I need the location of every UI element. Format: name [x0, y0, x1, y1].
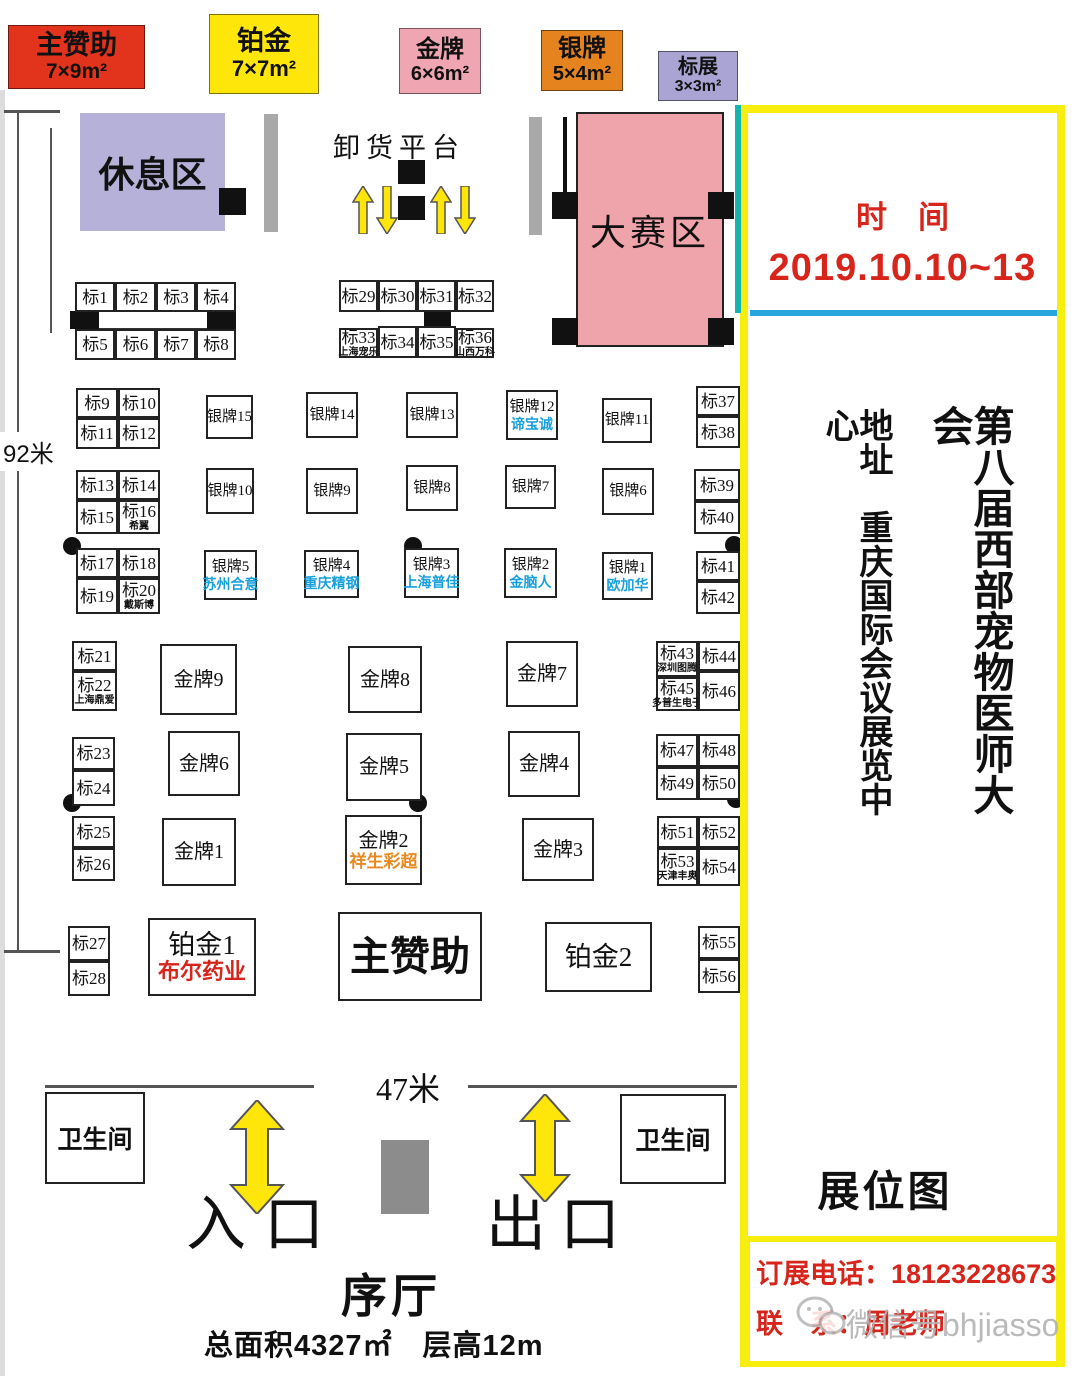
booth-label: 金牌1	[174, 842, 224, 862]
legend-label: 铂金	[237, 27, 291, 57]
booth-标25: 标25	[72, 816, 115, 848]
booth-company: 苏州合意	[203, 577, 259, 591]
booth-标19: 标19	[76, 578, 118, 614]
legend-label: 银牌	[558, 36, 606, 62]
booth-标48: 标48	[698, 734, 740, 767]
booth-标24: 标24	[72, 770, 115, 806]
booth-标30: 标30	[378, 280, 417, 312]
booth-金牌2: 金牌2祥生彩超	[345, 815, 422, 885]
booth-银牌14: 银牌14	[306, 392, 358, 438]
booth-标50: 标50	[698, 767, 740, 800]
booth-标26: 标26	[72, 848, 115, 881]
booth-标14: 标14	[118, 470, 160, 500]
booth-标3: 标3	[156, 282, 196, 312]
event-title: 第八届西部宠物医师大会	[928, 405, 1010, 835]
booth-标1: 标1	[75, 282, 115, 312]
booth-label: 标8	[203, 336, 229, 353]
booth-label: 标52	[702, 824, 736, 841]
legend-size: 7×7m²	[232, 57, 296, 81]
booth-company: 祥生彩超	[350, 853, 418, 870]
booth-label: 标56	[702, 968, 736, 985]
booth-标35: 标35	[417, 326, 456, 358]
booth-label: 标42	[701, 589, 735, 606]
booth-标7: 标7	[156, 329, 196, 360]
booth-company: 金脑人	[510, 575, 552, 589]
booth-标45: 标45多普生电子	[656, 677, 698, 711]
booth-标42: 标42	[696, 581, 740, 614]
booth-银牌8: 银牌8	[406, 465, 458, 511]
booth-标5: 标5	[75, 329, 115, 360]
venue-address: 地址 重庆国际会议展览中心	[822, 408, 890, 838]
booth-label: 主赞助	[350, 937, 470, 977]
phone-line: 订展电话：18123228673	[756, 1252, 1056, 1291]
booth-标41: 标41	[696, 551, 740, 581]
booth-label: 标49	[660, 775, 694, 792]
booth-标21: 标21	[72, 641, 117, 671]
column-marker	[398, 160, 425, 184]
booth-company: 山西万科	[455, 348, 495, 358]
column-marker	[207, 311, 236, 329]
booth-金牌8: 金牌8	[348, 646, 422, 713]
arrow-up-icon	[430, 186, 452, 239]
booth-label: 标26	[77, 856, 111, 873]
column-marker	[552, 318, 578, 345]
booth-label: 标27	[72, 935, 106, 952]
booth-标18: 标18	[118, 548, 160, 578]
booth-标52: 标52	[698, 816, 740, 848]
booth-标36: 标36山西万科	[456, 328, 494, 358]
booth-label: 标32	[458, 288, 492, 305]
rest-area-label: 休息区	[98, 146, 206, 198]
booth-标49: 标49	[656, 767, 698, 800]
page-edge-left	[0, 90, 5, 1376]
column-marker	[708, 192, 734, 219]
dates: 2019.10.10~13	[740, 247, 1065, 290]
booth-company: 上海鼎爱	[75, 696, 115, 706]
booth-标12: 标12	[118, 418, 160, 449]
booth-主赞助: 主赞助	[338, 912, 482, 1001]
booth-标20: 标20戴斯博	[118, 578, 160, 614]
booth-银牌3: 银牌3上海普佳	[404, 548, 459, 598]
booth-label: 标18	[122, 555, 156, 572]
legend-size: 6×6m²	[411, 63, 469, 85]
booth-label: 标20	[122, 582, 156, 599]
blue-divider	[750, 310, 1057, 316]
booth-label: 标10	[122, 395, 156, 412]
wall-segment	[563, 117, 567, 203]
booth-label: 标46	[702, 683, 736, 700]
booth-银牌15: 银牌15	[206, 395, 253, 439]
legend-platinum: 铂金 7×7m²	[209, 14, 319, 94]
booth-company: 重庆精钢	[304, 576, 360, 590]
wechat-icon	[795, 1294, 847, 1345]
booth-label: 标29	[342, 288, 376, 305]
booth-标31: 标31	[417, 280, 456, 312]
booth-label: 标24	[77, 780, 111, 797]
booth-银牌1: 银牌1欧加华	[602, 552, 653, 600]
legend-label: 标展	[678, 56, 718, 78]
booth-label: 标35	[420, 334, 454, 351]
booth-label: 银牌1	[609, 561, 647, 576]
booth-金牌5: 金牌5	[346, 733, 422, 801]
booth-金牌9: 金牌9	[160, 644, 237, 715]
booth-label: 标12	[122, 425, 156, 442]
booth-铂金2: 铂金2	[545, 922, 652, 992]
booth-label: 标13	[80, 477, 114, 494]
booth-label: 银牌5	[212, 560, 250, 575]
booth-金牌4: 金牌4	[508, 731, 580, 797]
booth-company: 布尔药业	[158, 961, 246, 983]
booth-company: 谛宝诚	[511, 417, 553, 431]
rest-area: 休息区	[80, 113, 225, 231]
booth-label: 金牌3	[533, 840, 583, 860]
booth-company: 希翼	[129, 522, 149, 532]
booth-label: 银牌11	[605, 413, 649, 428]
booth-label: 标30	[381, 288, 415, 305]
booth-label: 标53	[661, 853, 695, 870]
booth-company: 戴斯博	[124, 601, 154, 611]
booth-铂金1: 铂金1布尔药业	[148, 918, 256, 996]
booth-标32: 标32	[456, 280, 494, 312]
lobby-label: 序厅	[341, 1260, 441, 1326]
dimension-tick-bottom	[4, 950, 60, 953]
booth-银牌11: 银牌11	[602, 398, 652, 443]
legend-gold: 金牌 6×6m²	[399, 28, 481, 94]
booth-标17: 标17	[76, 548, 118, 578]
booth-label: 银牌13	[409, 408, 454, 423]
booth-label: 标41	[701, 558, 735, 575]
stage-block	[381, 1140, 429, 1214]
booth-银牌4: 银牌4重庆精钢	[304, 550, 359, 598]
booth-label: 银牌7	[512, 480, 550, 495]
booth-label: 标14	[122, 477, 156, 494]
legend-size: 7×9m²	[46, 60, 107, 83]
dimension-tick-top	[4, 110, 60, 113]
pillar	[264, 114, 278, 232]
booth-label: 标38	[701, 424, 735, 441]
competition-area-label: 大赛区	[590, 204, 710, 256]
booth-label: 标15	[80, 509, 114, 526]
booth-标2: 标2	[115, 282, 156, 312]
booth-company: 天津丰奥	[658, 872, 698, 882]
booth-label: 标19	[80, 588, 114, 605]
booth-标40: 标40	[694, 501, 740, 534]
column-marker	[708, 318, 734, 345]
booth-银牌5: 银牌5苏州合意	[204, 550, 257, 600]
booth-银牌6: 银牌6	[602, 468, 654, 515]
arrow-down-icon	[376, 186, 398, 239]
booth-label: 标25	[77, 824, 111, 841]
booth-label: 标47	[660, 742, 694, 759]
column-marker	[219, 188, 246, 215]
booth-label: 标21	[78, 648, 112, 665]
legend-standard: 标展 3×3m²	[658, 51, 738, 101]
column-marker	[398, 196, 425, 220]
booth-label: 铂金2	[565, 944, 633, 971]
booth-label: 标28	[72, 970, 106, 987]
booth-label: 银牌14	[309, 408, 354, 423]
booth-标10: 标10	[118, 388, 160, 418]
booth-company: 上海宠乐	[339, 348, 379, 358]
dimension-line-inner	[50, 128, 52, 333]
toilet-label: 卫生间	[635, 1121, 710, 1157]
competition-area: 大赛区	[576, 112, 724, 347]
booth-label: 标3	[163, 289, 189, 306]
booth-label: 标33	[342, 329, 376, 346]
booth-label: 银牌4	[313, 559, 351, 574]
map-title: 展位图	[770, 1158, 1000, 1219]
booth-label: 标16	[122, 503, 156, 520]
booth-label: 标37	[701, 393, 735, 410]
booth-label: 标39	[700, 477, 734, 494]
booth-标6: 标6	[115, 329, 156, 360]
booth-label: 铂金1	[168, 932, 236, 959]
column-marker	[70, 311, 99, 329]
toilet-left: 卫生间	[45, 1092, 145, 1184]
booth-label: 银牌15	[207, 410, 252, 425]
booth-金牌3: 金牌3	[522, 818, 594, 881]
booth-标44: 标44	[698, 641, 740, 671]
booth-label: 标1	[82, 289, 108, 306]
arrow-up-icon	[352, 186, 374, 239]
booth-标13: 标13	[76, 470, 118, 500]
booth-标29: 标29	[339, 280, 378, 312]
booth-label: 标31	[420, 288, 454, 305]
watermark: 微信号bhjiasso	[846, 1300, 1059, 1346]
booth-标33: 标33上海宠乐	[339, 328, 378, 358]
booth-label: 标22	[78, 677, 112, 694]
booth-label: 标2	[123, 289, 149, 306]
booth-label: 银牌6	[609, 484, 647, 499]
booth-label: 金牌5	[359, 757, 409, 777]
booth-label: 标36	[458, 329, 492, 346]
booth-label: 金牌7	[517, 664, 567, 684]
booth-标16: 标16希翼	[118, 500, 160, 534]
wall-segment	[468, 1085, 737, 1088]
booth-label: 标34	[381, 334, 415, 351]
wall-segment	[45, 1085, 314, 1088]
exit-label: 出口	[486, 1176, 634, 1263]
arrow-down-icon	[454, 186, 476, 239]
dimension-label-47m: 47米	[352, 1064, 464, 1110]
booth-金牌7: 金牌7	[506, 641, 578, 707]
floorplan-page: 主赞助 7×9m² 铂金 7×7m² 金牌 6×6m² 银牌 5×4m² 标展 …	[0, 0, 1080, 1376]
booth-标28: 标28	[68, 961, 110, 996]
booth-标39: 标39	[694, 469, 740, 501]
legend-label: 主赞助	[36, 31, 117, 61]
booth-标23: 标23	[72, 737, 115, 770]
booth-label: 银牌8	[413, 481, 451, 496]
toilet-label: 卫生间	[57, 1120, 132, 1156]
booth-company: 多普生电子	[652, 699, 702, 709]
legend-silver: 银牌 5×4m²	[541, 30, 623, 91]
booth-金牌1: 金牌1	[162, 818, 236, 886]
booth-label: 标40	[700, 509, 734, 526]
booth-label: 标43	[660, 645, 694, 662]
booth-金牌6: 金牌6	[168, 731, 240, 796]
booth-label: 标55	[702, 934, 736, 951]
pillar	[529, 117, 542, 235]
booth-label: 标9	[84, 395, 110, 412]
booth-银牌7: 银牌7	[505, 465, 556, 509]
booth-company: 欧加华	[607, 578, 649, 592]
booth-标37: 标37	[696, 386, 740, 416]
booth-标11: 标11	[76, 418, 118, 449]
booth-标54: 标54	[698, 848, 740, 886]
booth-label: 金牌6	[179, 754, 229, 774]
booth-标47: 标47	[656, 734, 698, 767]
column-marker	[552, 192, 578, 219]
booth-label: 金牌4	[519, 754, 569, 774]
booth-label: 金牌8	[360, 670, 410, 690]
area-info: 总面积4327㎡ 层高12m	[204, 1322, 544, 1364]
booth-标22: 标22上海鼎爱	[72, 671, 117, 711]
booth-label: 银牌9	[313, 484, 351, 499]
booth-标15: 标15	[76, 500, 118, 534]
booth-银牌2: 银牌2金脑人	[504, 548, 557, 598]
booth-label: 标4	[203, 289, 229, 306]
dimension-line-vertical	[17, 110, 19, 952]
booth-银牌13: 银牌13	[406, 392, 458, 438]
booth-label: 标5	[82, 336, 108, 353]
legend-label: 金牌	[416, 37, 464, 63]
booth-标34: 标34	[378, 326, 417, 358]
booth-label: 标44	[702, 648, 736, 665]
booth-标38: 标38	[696, 416, 740, 448]
booth-标55: 标55	[698, 926, 740, 959]
time-label: 时 间	[740, 192, 1065, 237]
booth-label: 标23	[77, 745, 111, 762]
booth-标46: 标46	[698, 671, 740, 711]
booth-company: 深圳图腾	[657, 664, 697, 674]
booth-标51: 标51	[657, 816, 698, 848]
booth-label: 标11	[80, 425, 113, 442]
booth-银牌9: 银牌9	[306, 468, 358, 514]
booth-label: 银牌10	[208, 484, 253, 499]
booth-label: 银牌12	[509, 400, 554, 415]
entrance-label: 入口	[186, 1176, 342, 1263]
booth-label: 标7	[163, 336, 189, 353]
legend-main-sponsor: 主赞助 7×9m²	[8, 25, 145, 89]
booth-标8: 标8	[196, 329, 236, 360]
legend-size: 3×3m²	[675, 78, 722, 96]
booth-label: 标50	[702, 775, 736, 792]
booth-标53: 标53天津丰奥	[657, 848, 698, 886]
toilet-right: 卫生间	[620, 1094, 726, 1184]
booth-label: 金牌2	[359, 831, 409, 851]
booth-银牌10: 银牌10	[206, 468, 254, 514]
booth-label: 标45	[660, 680, 694, 697]
booth-标43: 标43深圳图腾	[656, 641, 698, 677]
booth-标4: 标4	[196, 282, 236, 312]
booth-label: 银牌3	[413, 558, 451, 573]
booth-标56: 标56	[698, 959, 740, 993]
booth-标9: 标9	[76, 388, 118, 418]
booth-label: 标54	[702, 859, 736, 876]
booth-label: 金牌9	[174, 670, 224, 690]
booth-label: 银牌2	[512, 558, 550, 573]
booth-label: 标6	[123, 336, 149, 353]
booth-label: 标48	[702, 742, 736, 759]
booth-银牌12: 银牌12谛宝诚	[506, 390, 558, 440]
booth-标27: 标27	[68, 926, 110, 961]
dimension-label-92m: 92米	[0, 432, 57, 471]
booth-company: 上海普佳	[404, 575, 460, 589]
booth-label: 标17	[80, 555, 114, 572]
booth-label: 标51	[661, 824, 695, 841]
legend-size: 5×4m²	[553, 63, 611, 85]
